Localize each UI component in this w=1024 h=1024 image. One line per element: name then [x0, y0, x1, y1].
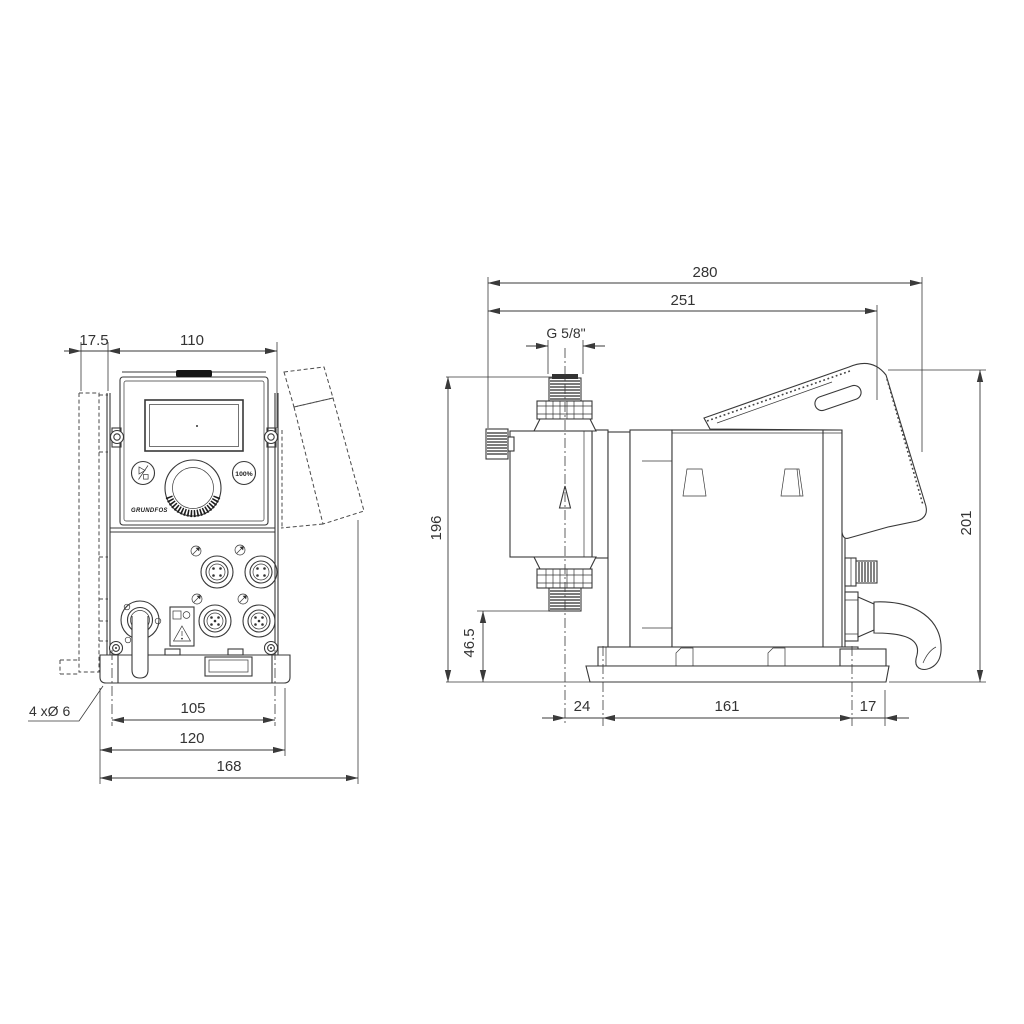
motor-housing — [672, 430, 845, 660]
dim-total-width-label: 168 — [216, 758, 241, 775]
capacity-100-label: 100% — [235, 471, 252, 478]
pump-head-body — [510, 431, 592, 557]
holes-label: 4 xØ 6 — [29, 703, 70, 719]
ear-screw-right — [265, 428, 278, 447]
connector-m12 — [199, 605, 231, 637]
top-tab — [176, 370, 212, 377]
dim-hole-span-label: 105 — [180, 700, 205, 717]
connector-plug-icon — [192, 594, 202, 604]
dim-hole-span-side-label: 161 — [714, 698, 739, 715]
cable-front — [132, 616, 148, 678]
connector-m12 — [243, 605, 275, 637]
click-wheel — [165, 460, 221, 516]
dim-height-label: 196 — [428, 515, 445, 540]
grundfos-logo: GRUNDFOS — [131, 508, 168, 514]
front-view: 100% GRUNDFOS — [28, 332, 364, 784]
dosing-head — [486, 374, 596, 611]
rear-connector — [845, 558, 877, 586]
connector-plug-icon — [235, 545, 245, 555]
connector-m12 — [201, 556, 233, 588]
wall-bracket-hidden — [60, 393, 108, 674]
suction-valve — [537, 569, 592, 611]
dim-depth-label: 251 — [670, 292, 695, 309]
mounting-plate-side — [586, 647, 889, 682]
dim-plate-width-label: 120 — [179, 730, 204, 747]
dim-offset-label: 17.5 — [79, 332, 108, 349]
adapter-section — [592, 430, 672, 650]
dim-width-label: 110 — [180, 332, 204, 349]
phantom-control-cube — [281, 367, 364, 528]
dim-total-depth-label: 280 — [692, 264, 717, 281]
discharge-valve — [537, 374, 592, 419]
dim-inlet-height-label: 46.5 — [461, 628, 478, 657]
dim-total-height-label: 201 — [958, 510, 975, 535]
thread-label: G 5/8" — [546, 325, 585, 341]
dim-rear-offset-label: 17 — [860, 698, 877, 715]
corner-screw — [110, 642, 123, 655]
control-panel: 100% GRUNDFOS — [111, 370, 278, 525]
connector-plug-icon — [238, 594, 248, 604]
connector-plug-icon — [191, 546, 201, 556]
warning-label — [170, 607, 194, 646]
signal-connectors — [191, 545, 277, 637]
side-view: 280 251 G 5/8" 196 46.5 201 24 161 1 — [428, 264, 986, 726]
connector-m12 — [245, 556, 277, 588]
dim-front-offset-label: 24 — [574, 698, 591, 715]
technical-drawing: 100% GRUNDFOS — [0, 0, 1024, 1024]
corner-screw — [265, 642, 278, 655]
mounting-plate-front — [100, 649, 290, 683]
capacity-100-button: 100% — [233, 462, 256, 485]
start-stop-button — [132, 462, 155, 485]
